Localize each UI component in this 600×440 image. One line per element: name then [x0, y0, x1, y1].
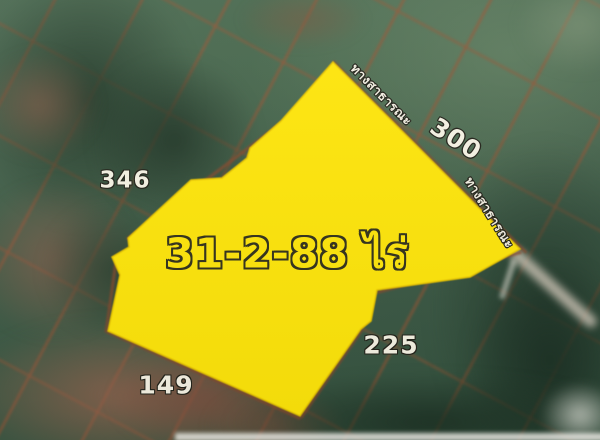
- parcel-area-label: 31-2-88 ไร่: [165, 234, 409, 275]
- aerial-map-image: 31-2-88 ไร่ 346 300 225 149 ทางสาธารณะ ท…: [0, 0, 600, 440]
- plot-number-149: 149: [138, 373, 193, 398]
- plot-number-346: 346: [99, 170, 150, 193]
- highlighted-parcel-shape: [0, 0, 600, 440]
- plot-number-225: 225: [363, 333, 418, 358]
